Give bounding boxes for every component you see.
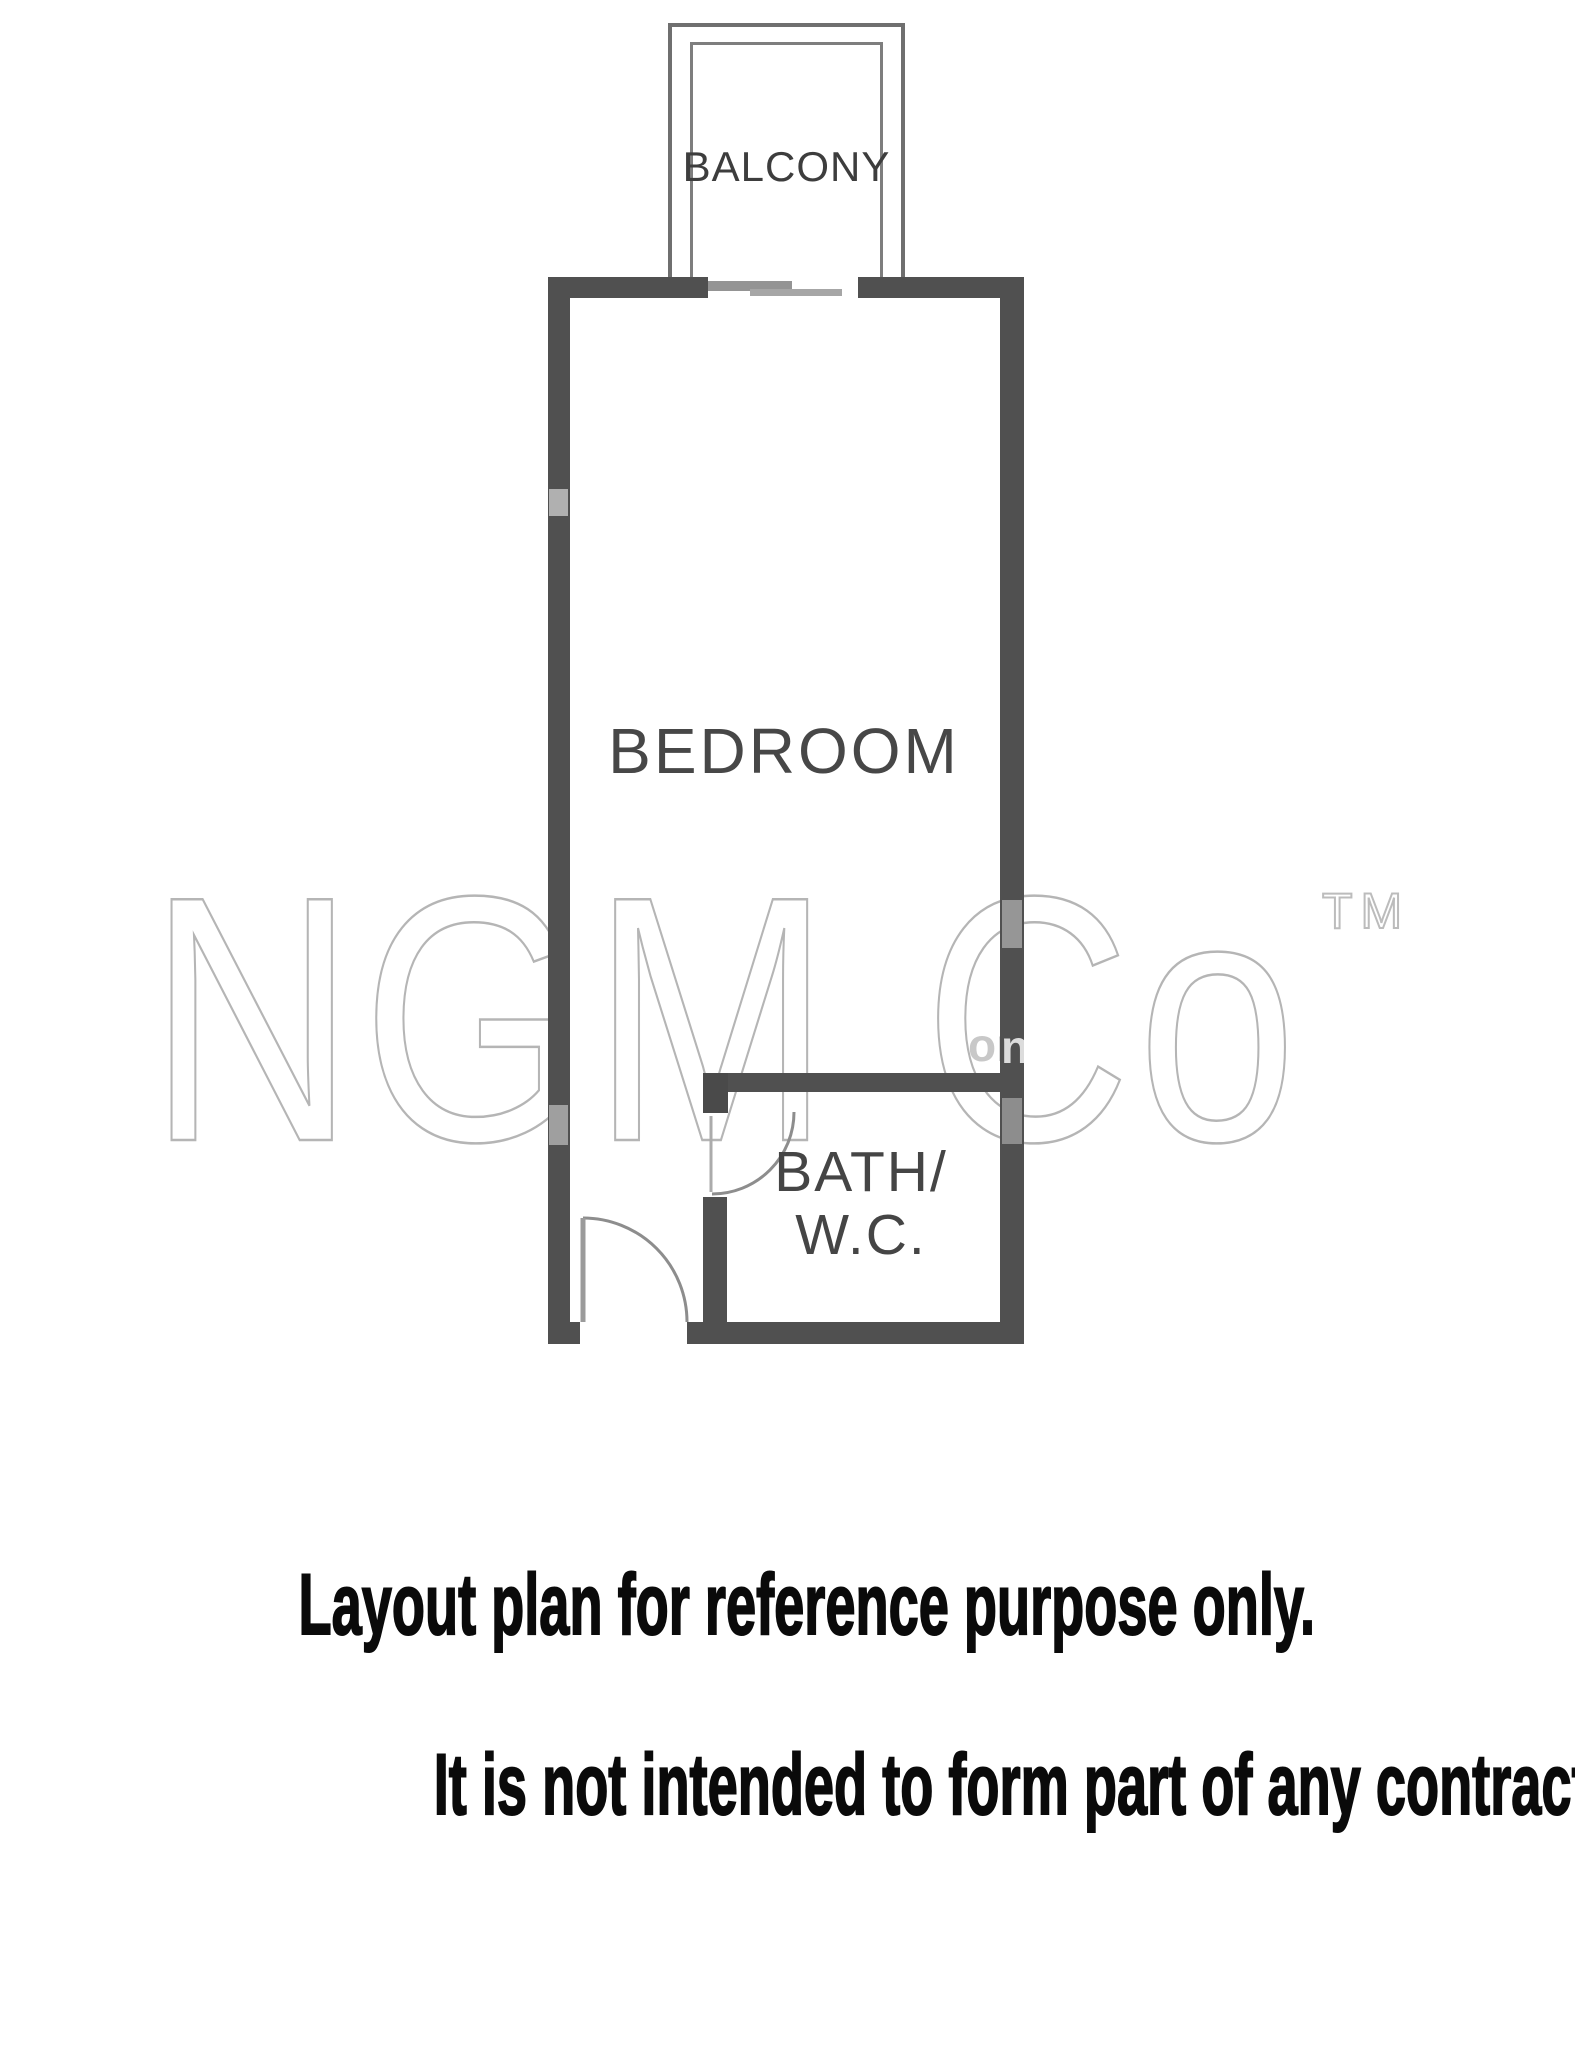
entrance-door-arc — [583, 1218, 687, 1322]
wall-left — [548, 277, 570, 1343]
wall-bath-partition-horizontal — [703, 1073, 1003, 1092]
disclaimer-line-2-text: It is not intended to form part of any c… — [434, 1736, 1575, 1835]
watermark-overlay-fragment-right: n — [1001, 1020, 1029, 1074]
wall-scan-patch — [1002, 900, 1022, 948]
wall-bottom-left-stub — [548, 1322, 580, 1344]
floorplan-page: NGM Co TM or n BALCONY BEDROOM BATH/ W.C… — [0, 0, 1575, 2048]
wall-scan-patch — [549, 1105, 568, 1145]
disclaimer-line-1-text: Layout plan for reference purpose only. — [299, 1556, 1316, 1655]
room-label-bath-line2: W.C. — [711, 1204, 1011, 1267]
room-label-bath-line1: BATH/ — [711, 1141, 1011, 1204]
wall-bath-partition-end-block — [703, 1073, 728, 1113]
disclaimer-line-1: Layout plan for reference purpose only. — [0, 1556, 1575, 1655]
wall-bottom-main — [687, 1322, 1024, 1344]
wall-scan-patch — [549, 489, 568, 516]
watermark-trademark-symbol: TM — [1322, 886, 1410, 936]
wall-top-left-segment — [548, 277, 708, 298]
room-label-balcony: BALCONY — [668, 143, 905, 191]
balcony-sliding-door-panel — [750, 289, 842, 296]
room-label-bath-wc: BATH/ W.C. — [711, 1141, 1011, 1267]
wall-scan-patch — [1002, 1098, 1022, 1144]
room-label-bedroom: BEDROOM — [584, 714, 984, 788]
disclaimer-line-2: It is not intended to form part of any c… — [0, 1736, 1575, 1835]
